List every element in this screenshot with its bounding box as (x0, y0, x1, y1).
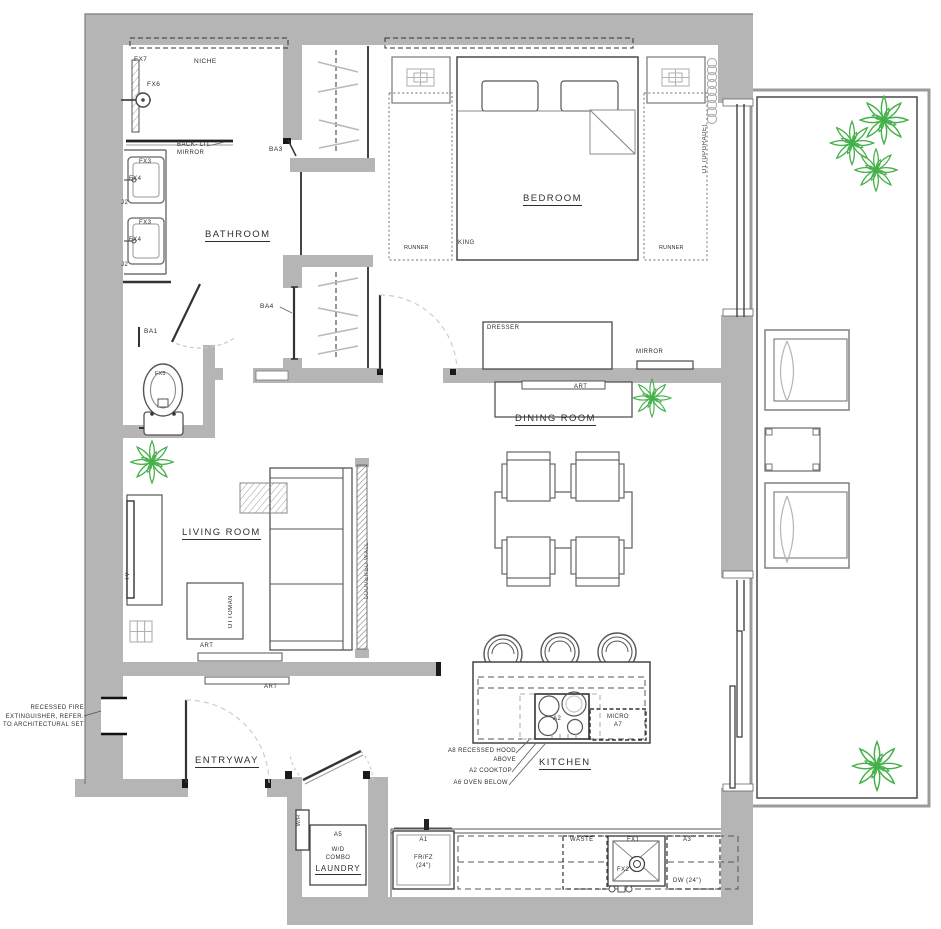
note-line: A2 COOKTOP (469, 767, 512, 776)
fx2-label: FX2 (617, 867, 630, 873)
fx4-label: FX4 (129, 176, 142, 182)
backlit-mirror-note: BACK- LIT (177, 142, 210, 148)
a2-label: A2 (553, 716, 561, 722)
fx7-label: FX7 (134, 56, 147, 63)
note-line: A8 RECESSED HOOD (448, 747, 516, 756)
ottoman (187, 583, 243, 639)
note-line: TO ARCHITECTURAL SET (3, 721, 84, 730)
fx3-label: FX3 (139, 159, 152, 165)
tv-label: TV (125, 572, 131, 581)
wd-label: COMBO (326, 854, 351, 863)
d1-curtain-coil (707, 58, 716, 123)
mirror-label: MIRROR (636, 349, 663, 355)
room-label-bedroom: BEDROOM (523, 193, 582, 206)
ba1-label: BA1 (144, 328, 158, 335)
floor-plan: NICHE FX7 FX6 BACK- LIT MIRROR FX3 FX4 J… (0, 0, 941, 929)
dresser-label: DRESSER (487, 325, 520, 331)
room-label-entryway: ENTRYWAY (195, 755, 259, 768)
micro-labels: MICRO A7 (592, 713, 644, 729)
art-frame (198, 653, 282, 661)
frfz-label: FR/FZ (414, 854, 433, 863)
dining-furniture (495, 381, 632, 586)
j2-label: J2 (121, 200, 128, 206)
art-frame (522, 381, 605, 389)
runner-rug (644, 93, 707, 260)
fridge-labels: A1 FR/FZ (24") (393, 836, 454, 871)
fx5-label: FX5 (155, 371, 166, 377)
room-label-kitchen: KITCHEN (539, 757, 591, 770)
note-line: A6 OVEN BELOW (453, 779, 508, 788)
j2-label: J2 (121, 262, 128, 268)
runner-label: RUNNER (659, 245, 684, 251)
fx3-label: FX3 (139, 220, 152, 226)
faucet-fx2 (630, 857, 645, 872)
laundry-door (303, 751, 361, 780)
fx1-label: FX1 (627, 837, 640, 843)
size-label: (24") (416, 862, 431, 871)
king-label: KING (458, 240, 475, 246)
entry-doors (186, 700, 373, 784)
water-heater-label: W/H (296, 815, 302, 826)
room-label-bathroom: BATHROOM (205, 229, 270, 242)
runner-rug (389, 93, 452, 260)
art-label: ART (264, 684, 277, 690)
lounge-chair (765, 483, 849, 568)
oven-note: A6 OVEN BELOW (428, 779, 508, 788)
bathroom-door-ba1 (172, 284, 200, 342)
art-frame (205, 677, 289, 684)
note-line: EXTINGUISHER, REFER. (6, 713, 84, 722)
ba3-label: BA3 (269, 146, 283, 153)
backlit-mirror-note: MIRROR (177, 150, 204, 156)
pillow (482, 81, 538, 111)
note-line: ABOVE (493, 756, 516, 765)
cooktop-a2 (535, 692, 589, 739)
a7-label: A7 (614, 721, 622, 729)
ottoman-label: OTTOMAN (228, 595, 234, 628)
laundry-unit-labels: A5 W/D COMBO LAUNDRY (310, 831, 366, 875)
fx6-label: FX6 (147, 81, 160, 88)
art-label: ART (574, 384, 587, 390)
a1-label: A1 (419, 836, 427, 845)
runner-label: RUNNER (404, 245, 429, 251)
side-table (130, 621, 152, 642)
throw-blanket (240, 483, 287, 513)
living-furniture (127, 465, 367, 684)
waste-label: WASTE (570, 837, 594, 843)
note-line: RECESSED FIRE (30, 704, 84, 713)
fire-extinguisher-note: RECESSED FIRE EXTINGUISHER, REFER. TO AR… (0, 704, 84, 730)
room-label-laundry: LAUNDRY (315, 865, 360, 876)
a5-label: A5 (334, 831, 342, 840)
lounge-chair (765, 330, 849, 410)
hood-note: A8 RECESSED HOOD ABOVE (428, 747, 516, 764)
slider-panel (737, 631, 742, 737)
cooktop-note: A2 COOKTOP (428, 767, 512, 776)
a3-label: A3 (683, 837, 691, 843)
pillow (561, 81, 618, 111)
wall-mirror (637, 361, 693, 369)
plan-linework (0, 0, 941, 929)
ba4-label: BA4 (260, 303, 274, 310)
sink-fx1 (608, 836, 665, 892)
louvered-wall-label: LOUVERED WALL (364, 542, 370, 599)
wd-label: W/D (332, 846, 345, 855)
room-label-dining: DINING ROOM (515, 413, 596, 426)
fire-extinguisher-recess (101, 698, 127, 734)
bedroom-furniture (380, 57, 707, 372)
slider-panel (730, 686, 735, 788)
balcony-table (765, 428, 820, 471)
dw-label: DW (24") (673, 878, 701, 884)
tv (127, 501, 134, 598)
fx4-label: FX4 (129, 237, 142, 243)
micro-label: MICRO (607, 713, 629, 721)
art-label: ART (200, 643, 213, 649)
d1-upgrade-label: D1 (UPGRADE) (702, 124, 708, 173)
room-label-living: LIVING ROOM (182, 527, 261, 540)
niche-label: NICHE (194, 58, 217, 65)
